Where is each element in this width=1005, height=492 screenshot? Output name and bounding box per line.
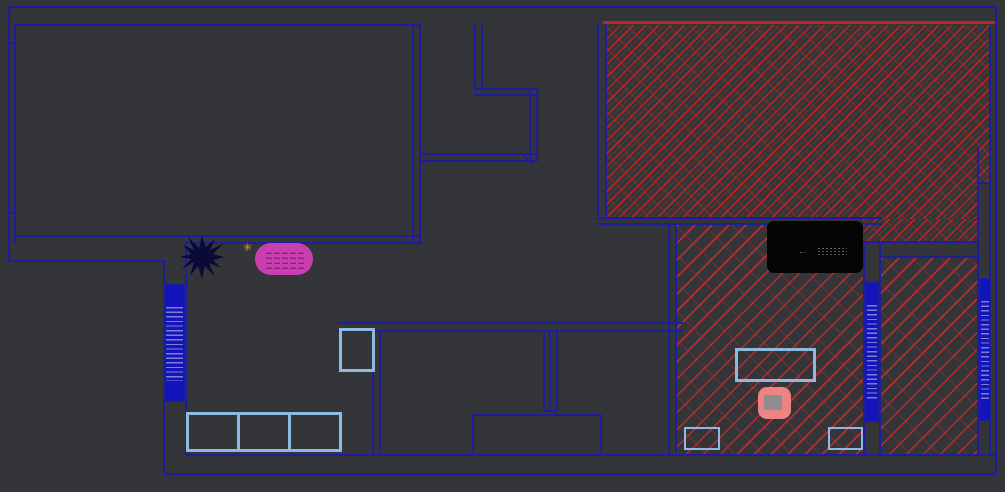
wall-segment bbox=[8, 6, 997, 8]
wall-segment bbox=[879, 241, 881, 455]
wall-segment bbox=[600, 414, 602, 455]
wall-segment bbox=[8, 212, 16, 214]
wall-segment bbox=[556, 330, 558, 412]
wall-segment bbox=[879, 256, 979, 258]
tiled-floor-top-right bbox=[607, 25, 991, 219]
wall-segment bbox=[419, 24, 421, 245]
wall-segment bbox=[8, 260, 165, 262]
bathtub-rug[interactable] bbox=[255, 243, 313, 275]
tiled-floor-right-room bbox=[881, 258, 977, 454]
wall-segment bbox=[977, 182, 991, 184]
wardrobe-cell bbox=[240, 415, 291, 449]
wall-segment bbox=[668, 223, 670, 455]
chair-seat bbox=[764, 395, 782, 410]
duct-shaft bbox=[979, 184, 989, 277]
cabinet-small-left[interactable] bbox=[684, 427, 720, 450]
appliance-speck bbox=[799, 251, 805, 255]
radiator-far-right[interactable] bbox=[979, 278, 991, 421]
black-appliance[interactable] bbox=[767, 221, 863, 273]
wall-segment bbox=[597, 217, 882, 219]
wall-segment bbox=[675, 223, 677, 455]
floor-plan-canvas[interactable]: ✳ bbox=[0, 0, 1005, 492]
plant-symbol[interactable] bbox=[180, 235, 225, 280]
wall-segment bbox=[8, 42, 16, 44]
wall-segment bbox=[481, 24, 483, 90]
wall-segment bbox=[529, 88, 531, 162]
wall-segment bbox=[995, 6, 997, 475]
wall-segment bbox=[420, 160, 538, 162]
radiator-fins bbox=[166, 307, 183, 381]
chair-object[interactable] bbox=[758, 387, 791, 419]
wall-segment bbox=[185, 454, 997, 456]
tile-edge-line bbox=[603, 21, 995, 24]
cabinet-small-right[interactable] bbox=[828, 427, 863, 450]
wardrobe-cell bbox=[291, 415, 339, 449]
wall-segment bbox=[14, 24, 16, 243]
tiled-floor-top-right-ext bbox=[863, 219, 991, 241]
wall-segment bbox=[337, 322, 683, 324]
wall-segment bbox=[8, 6, 10, 262]
wall-segment bbox=[337, 330, 683, 332]
wardrobe-cabinets[interactable] bbox=[186, 412, 342, 452]
wall-segment bbox=[597, 24, 599, 220]
wall-segment bbox=[543, 330, 545, 412]
wall-segment bbox=[605, 24, 607, 220]
wall-segment bbox=[472, 414, 474, 455]
wall-segment bbox=[379, 330, 381, 455]
wall-segment bbox=[474, 24, 476, 90]
radiator-fins bbox=[981, 301, 989, 400]
wall-segment bbox=[412, 24, 414, 243]
plant-shape bbox=[180, 236, 224, 279]
table[interactable] bbox=[735, 348, 816, 382]
wall-segment bbox=[472, 414, 602, 416]
cabinet-box[interactable] bbox=[339, 328, 375, 372]
radiator-mid-right[interactable] bbox=[865, 282, 879, 422]
radiator-fins bbox=[867, 305, 877, 401]
wall-segment bbox=[549, 330, 551, 412]
wall-segment bbox=[14, 24, 420, 26]
wall-segment bbox=[536, 88, 538, 162]
wall-segment bbox=[543, 410, 558, 412]
appliance-specks bbox=[817, 247, 847, 256]
wall-segment bbox=[163, 473, 997, 475]
wardrobe-cell bbox=[189, 415, 240, 449]
sparkle-marker: ✳ bbox=[243, 242, 252, 253]
bathtub-rug-texture bbox=[264, 249, 304, 269]
radiator-left[interactable] bbox=[164, 284, 185, 402]
